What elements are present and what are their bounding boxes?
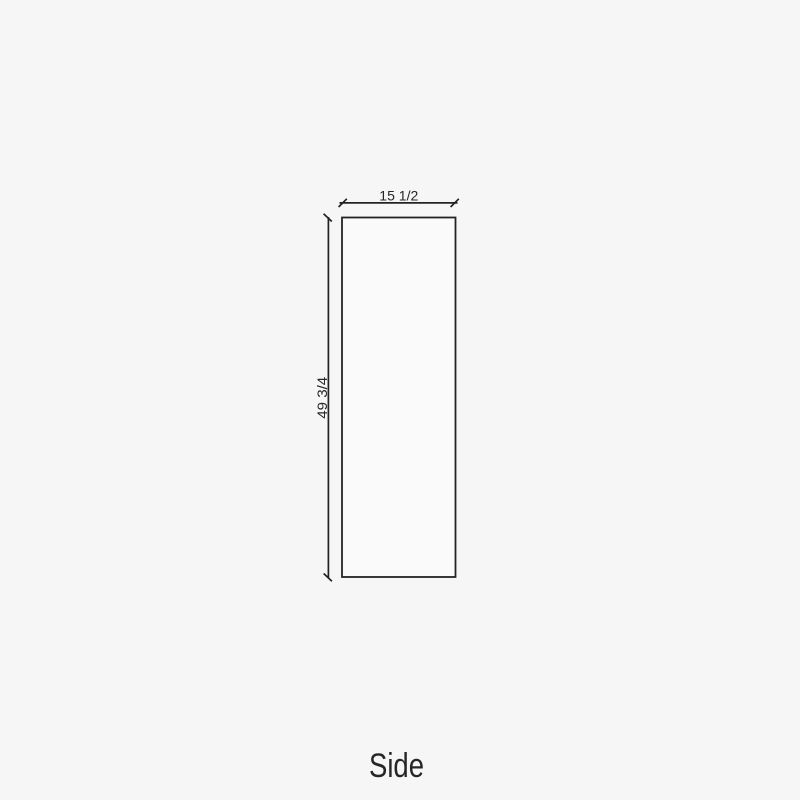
- svg-text:49 3/4: 49 3/4: [314, 377, 330, 419]
- svg-text:15 1/2: 15 1/2: [379, 187, 418, 203]
- svg-text:Side: Side: [369, 747, 424, 785]
